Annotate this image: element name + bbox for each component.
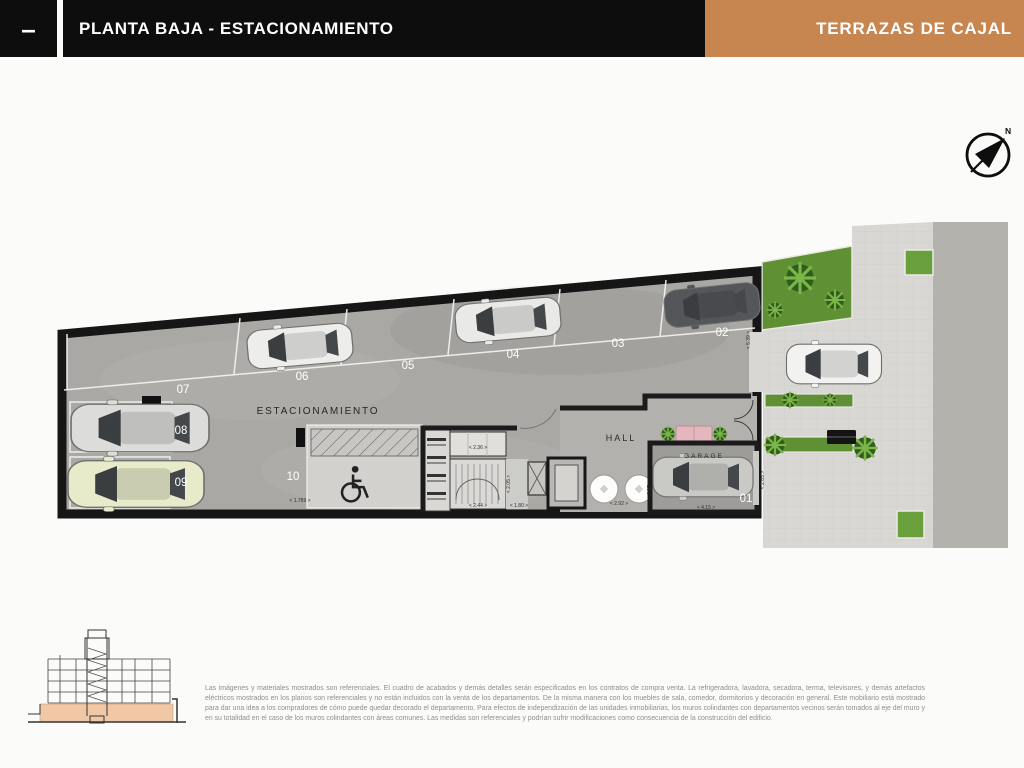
dim-244: < 2.44 >: [469, 503, 487, 509]
road-strip: [933, 222, 1008, 548]
stall-number-01: 01: [740, 493, 753, 505]
column: [142, 396, 161, 404]
tree-pit: [905, 250, 933, 275]
dim-1789: < 1.789 >: [289, 498, 310, 504]
legal-disclaimer: Las imágenes y materiales mostrados son …: [205, 684, 925, 724]
dim-236: < 2.36 >: [469, 445, 487, 451]
north-label: N: [1005, 126, 1011, 136]
stall-number-09: 09: [175, 477, 188, 489]
stall-number-06: 06: [296, 371, 309, 383]
tree-pit: [897, 511, 924, 538]
dim-265: < 2.65 >: [760, 471, 766, 489]
garage-label: GARAGE: [684, 453, 724, 460]
section-floors: [48, 655, 170, 703]
floor-plan-canvas: ESTACIONAMIENTO HALL GARAGE 01 02 03 04 …: [0, 0, 1024, 768]
elevator: [548, 458, 585, 508]
car-stall-08: [71, 400, 209, 456]
stall-number-04: 04: [507, 349, 520, 361]
stall-number-03: 03: [612, 338, 625, 350]
column: [296, 428, 305, 447]
hall-label: HALL: [606, 433, 637, 443]
dim-180: < 1.80 >: [510, 503, 528, 509]
dim-539: < 5.39 >: [746, 331, 752, 349]
stall-number-05: 05: [402, 360, 415, 372]
stall-number-02: 02: [716, 327, 729, 339]
building-section-drawing: [28, 630, 186, 723]
dim-292: < 2.92 >: [610, 501, 628, 507]
stall-10-accessible: [296, 425, 422, 508]
parking-label: ESTACIONAMIENTO: [257, 406, 380, 417]
planter-strip: [765, 394, 853, 407]
dim-297: 2.97: [647, 485, 653, 495]
car-driveway: [787, 341, 882, 388]
street-bench: [827, 430, 856, 444]
planting-bed: [762, 246, 852, 330]
dim-415: < 4.15 >: [697, 505, 715, 511]
stall-number-10: 10: [287, 471, 300, 483]
stall-number-08: 08: [175, 425, 188, 437]
storage-room: [450, 432, 506, 456]
dim-205: < 2.05 >: [506, 475, 512, 493]
north-compass: N: [967, 126, 1011, 176]
stall-number-07: 07: [177, 384, 190, 396]
car-stall-01: [653, 454, 753, 501]
hall-bench: [660, 426, 727, 442]
garage-door: [753, 451, 759, 505]
